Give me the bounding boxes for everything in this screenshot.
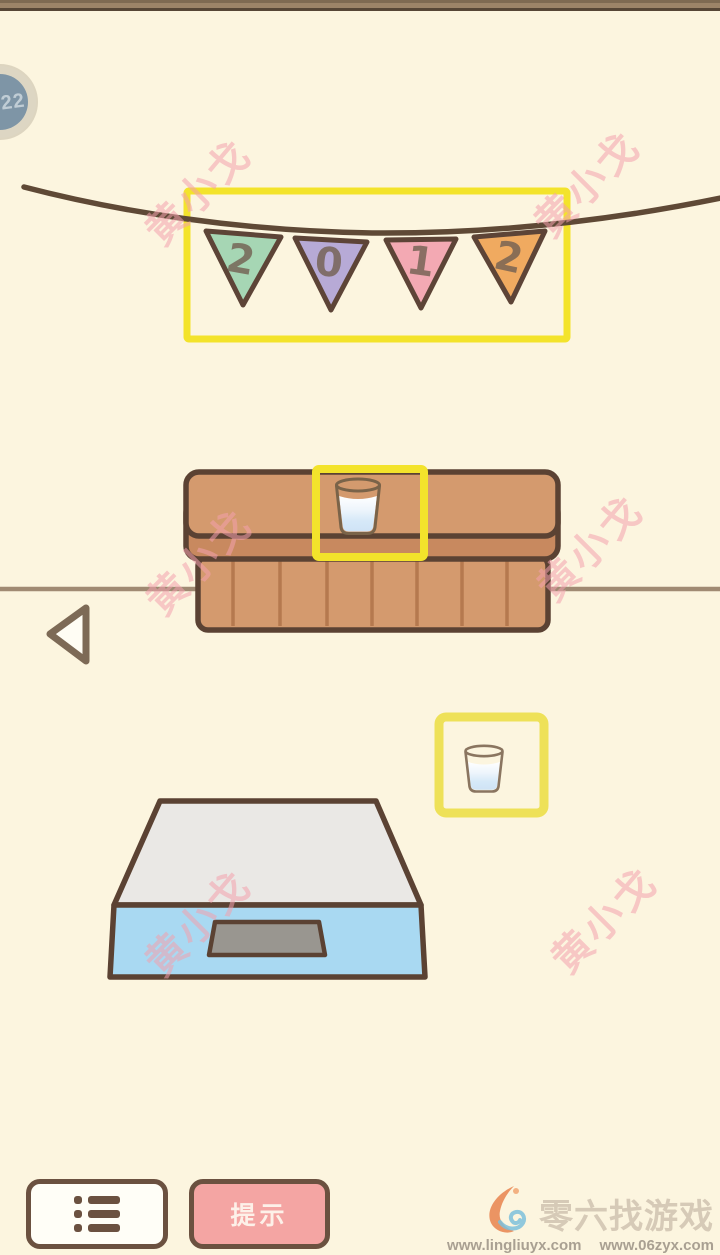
site-watermark: 零六找游戏 www.lingliuyx.com www.06zyx.com: [447, 1184, 714, 1254]
list-icon: [74, 1196, 120, 1232]
water-glass[interactable]: [466, 746, 503, 792]
site-urls: www.lingliuyx.com www.06zyx.com: [447, 1237, 714, 1254]
site-brand-text: 零六找游戏: [539, 1199, 714, 1236]
scale-top-surface[interactable]: [114, 801, 421, 905]
hint-button-label: 提示: [230, 1196, 288, 1232]
level-badge-circle: 22: [0, 74, 28, 130]
flame-logo-icon: [480, 1184, 534, 1236]
flag-digit-2: 0: [313, 239, 345, 287]
scale-display: [209, 922, 325, 955]
weighing-scale[interactable]: [110, 801, 425, 977]
site-url-right: www.06zyx.com: [600, 1237, 715, 1254]
menu-button[interactable]: [26, 1179, 168, 1249]
game-screen: 22 2 0 1 2: [0, 0, 720, 1255]
water-liquid: [468, 762, 500, 790]
level-number: 22: [0, 89, 27, 115]
milk-liquid: [339, 496, 377, 532]
water-glass-rim: [466, 746, 503, 756]
cabinet[interactable]: [186, 472, 558, 630]
hint-button[interactable]: 提示: [189, 1179, 330, 1249]
site-url-left: www.lingliuyx.com: [447, 1237, 581, 1254]
game-scene: 2 0 1 2: [0, 0, 720, 1255]
top-border: [0, 0, 720, 11]
back-arrow-icon[interactable]: [50, 608, 86, 661]
